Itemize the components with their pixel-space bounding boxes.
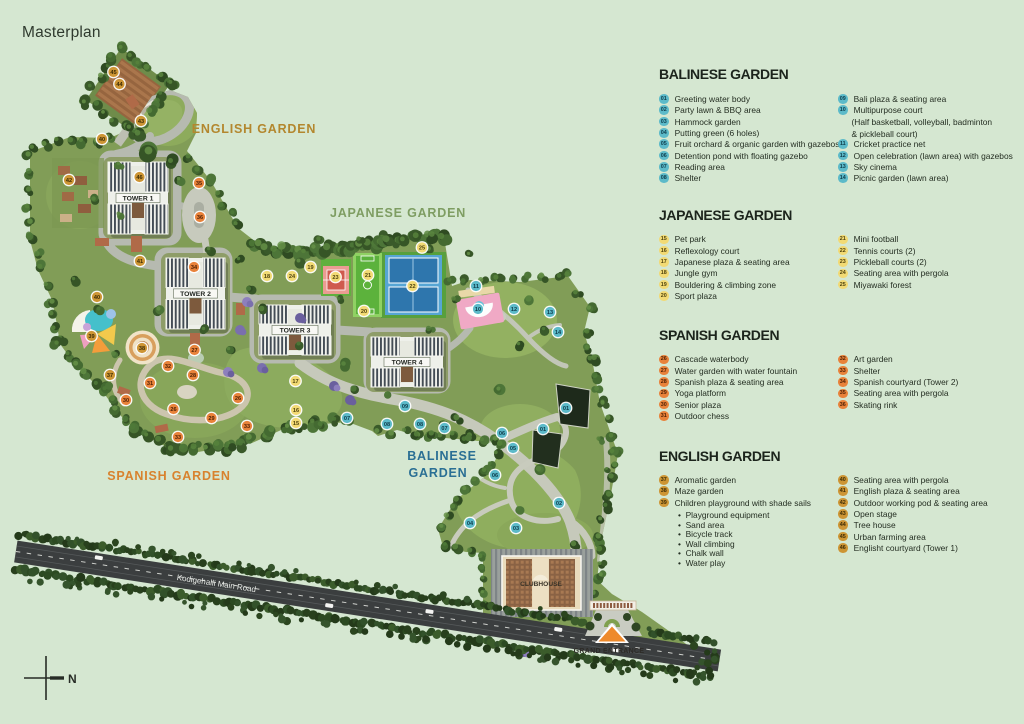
svg-text:25: 25 — [419, 246, 425, 252]
svg-text:17: 17 — [292, 379, 298, 385]
svg-text:34: 34 — [191, 265, 198, 271]
svg-text:24: 24 — [289, 274, 296, 280]
svg-text:GRAND ENTRANCE: GRAND ENTRANCE — [574, 648, 645, 655]
svg-text:38: 38 — [139, 346, 145, 352]
svg-text:33: 33 — [244, 424, 250, 430]
svg-text:26: 26 — [170, 407, 176, 413]
svg-text:22: 22 — [409, 284, 415, 290]
svg-text:31: 31 — [147, 381, 153, 387]
svg-text:21: 21 — [365, 273, 371, 279]
svg-text:11: 11 — [473, 284, 479, 290]
svg-text:01: 01 — [563, 406, 569, 412]
svg-text:ENGLISH GARDEN: ENGLISH GARDEN — [192, 122, 316, 136]
svg-text:28: 28 — [190, 373, 196, 379]
svg-text:12: 12 — [511, 307, 517, 313]
svg-text:18: 18 — [264, 274, 270, 280]
svg-text:02: 02 — [556, 501, 562, 507]
svg-text:32: 32 — [165, 364, 171, 370]
svg-text:26: 26 — [235, 396, 241, 402]
svg-text:09: 09 — [402, 404, 408, 410]
svg-text:08: 08 — [384, 422, 390, 428]
svg-text:07: 07 — [441, 426, 447, 432]
svg-text:37: 37 — [107, 373, 113, 379]
svg-text:13: 13 — [547, 310, 553, 316]
svg-text:04: 04 — [467, 521, 474, 527]
svg-text:20: 20 — [361, 309, 367, 315]
svg-text:44: 44 — [116, 82, 123, 88]
svg-text:N: N — [68, 672, 77, 686]
svg-text:45: 45 — [110, 70, 116, 76]
svg-text:41: 41 — [137, 259, 143, 265]
svg-text:40: 40 — [99, 137, 105, 143]
svg-text:43: 43 — [138, 119, 144, 125]
svg-text:CLUBHOUSE: CLUBHOUSE — [520, 581, 562, 588]
svg-text:06: 06 — [499, 431, 505, 437]
svg-text:19: 19 — [307, 265, 313, 271]
svg-text:TOWER 4: TOWER 4 — [392, 360, 423, 367]
svg-text:16: 16 — [293, 408, 299, 414]
svg-text:06: 06 — [492, 473, 498, 479]
svg-text:TOWER 2: TOWER 2 — [180, 291, 211, 298]
svg-text:07: 07 — [344, 416, 350, 422]
svg-text:30: 30 — [123, 398, 129, 404]
svg-text:10: 10 — [475, 307, 481, 313]
svg-text:33: 33 — [175, 435, 181, 441]
svg-text:TOWER 3: TOWER 3 — [280, 328, 311, 335]
svg-text:SPANISH GARDEN: SPANISH GARDEN — [107, 469, 230, 483]
svg-text:29: 29 — [208, 416, 214, 422]
svg-text:08: 08 — [417, 422, 423, 428]
svg-text:GARDEN: GARDEN — [409, 466, 468, 480]
svg-text:BALINESE: BALINESE — [407, 449, 477, 463]
svg-text:01: 01 — [540, 427, 546, 433]
svg-text:23: 23 — [332, 275, 338, 281]
svg-text:TOWER 1: TOWER 1 — [123, 196, 154, 203]
svg-text:27: 27 — [191, 348, 197, 354]
svg-text:40: 40 — [94, 295, 100, 301]
svg-text:14: 14 — [555, 330, 562, 336]
svg-text:39: 39 — [88, 334, 94, 340]
svg-text:42: 42 — [66, 178, 72, 184]
svg-text:05: 05 — [510, 446, 516, 452]
svg-text:46: 46 — [136, 175, 142, 181]
svg-text:JAPANESE GARDEN: JAPANESE GARDEN — [330, 206, 466, 220]
svg-text:35: 35 — [196, 181, 202, 187]
svg-text:03: 03 — [513, 526, 519, 532]
svg-text:15: 15 — [293, 421, 299, 427]
svg-text:36: 36 — [197, 215, 203, 221]
